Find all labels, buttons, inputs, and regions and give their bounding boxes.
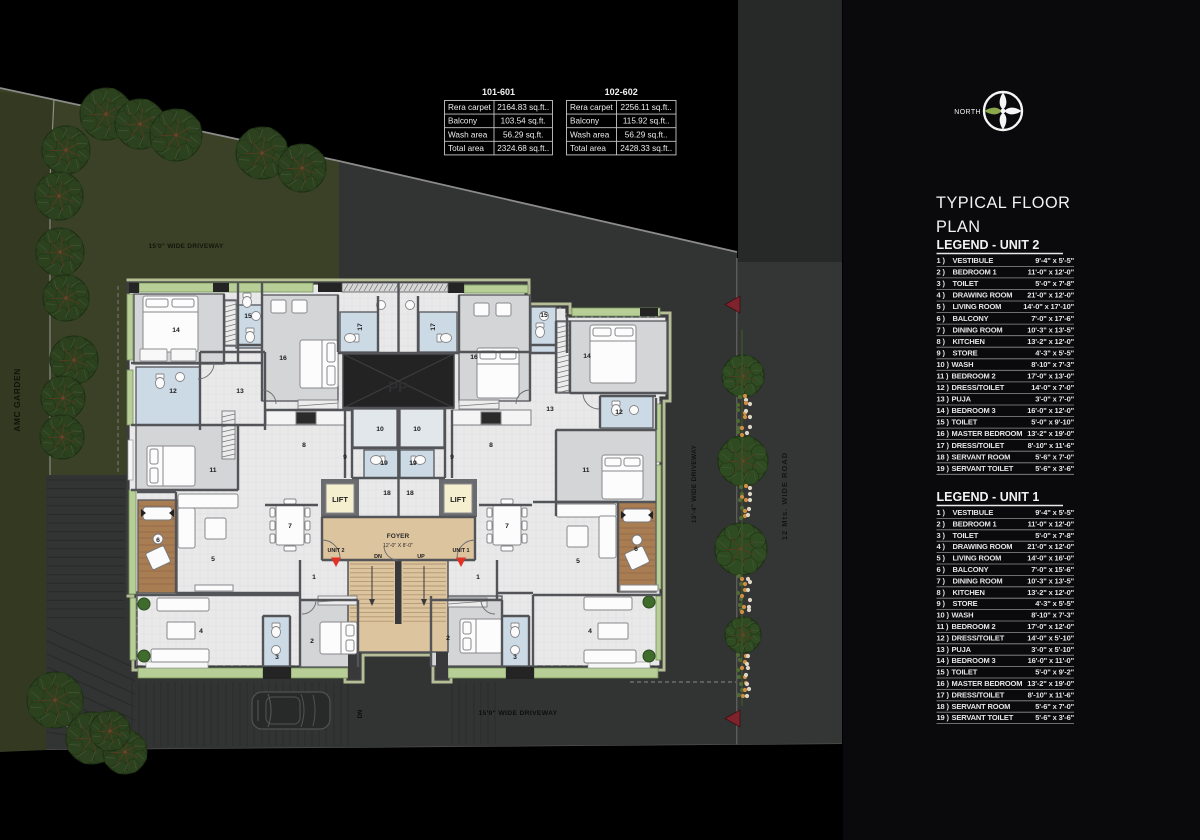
svg-text:9: 9 (450, 454, 454, 461)
svg-text:1 ): 1 ) (937, 256, 946, 265)
svg-text:6: 6 (156, 537, 160, 544)
svg-text:3'-0" x 7'-0": 3'-0" x 7'-0" (1035, 395, 1074, 404)
svg-text:4'-3" x 5'-5": 4'-3" x 5'-5" (1035, 599, 1074, 608)
svg-text:5'-6" x 7'-0": 5'-6" x 7'-0" (1035, 452, 1074, 461)
svg-text:18 ): 18 ) (937, 702, 950, 711)
svg-text:LEGEND - UNIT 1: LEGEND - UNIT 1 (937, 490, 1040, 504)
svg-text:12: 12 (615, 409, 623, 416)
svg-text:13'-2" x 12'-0": 13'-2" x 12'-0" (1027, 588, 1074, 597)
svg-text:8'-10" x 11'-6": 8'-10" x 11'-6" (1028, 690, 1075, 699)
svg-text:2 ): 2 ) (937, 519, 946, 528)
svg-text:LIVING ROOM: LIVING ROOM (953, 302, 1002, 311)
svg-text:LIFT: LIFT (450, 495, 466, 504)
svg-text:13 ): 13 ) (937, 395, 950, 404)
svg-text:3: 3 (513, 654, 517, 661)
svg-text:2324.68 sq.ft..: 2324.68 sq.ft.. (497, 144, 549, 153)
svg-text:14 ): 14 ) (937, 406, 950, 415)
svg-text:13'-2" x 12'-0": 13'-2" x 12'-0" (1027, 337, 1074, 346)
svg-text:5 ): 5 ) (937, 554, 946, 563)
svg-text:Balcony: Balcony (570, 117, 600, 126)
svg-text:16'-0" x 12'-0": 16'-0" x 12'-0" (1027, 406, 1074, 415)
svg-text:15: 15 (244, 313, 252, 320)
svg-text:56.29 sq.ft.: 56.29 sq.ft. (503, 130, 544, 139)
svg-text:17: 17 (357, 323, 364, 331)
svg-text:8: 8 (489, 442, 493, 449)
svg-text:14'-0" x 5'-10": 14'-0" x 5'-10" (1027, 633, 1074, 642)
svg-text:13'-2" x 19'-0": 13'-2" x 19'-0" (1027, 679, 1074, 688)
svg-text:10: 10 (413, 426, 421, 433)
svg-text:4 ): 4 ) (937, 291, 946, 300)
svg-text:UNIT 1: UNIT 1 (452, 548, 469, 554)
svg-text:18: 18 (383, 490, 391, 497)
svg-text:BEDROOM 1: BEDROOM 1 (953, 268, 997, 277)
svg-text:6: 6 (634, 546, 638, 553)
svg-text:7: 7 (288, 523, 292, 530)
svg-text:5: 5 (211, 556, 215, 563)
svg-text:13: 13 (546, 406, 554, 413)
svg-text:TOILET: TOILET (952, 668, 978, 677)
svg-text:5: 5 (576, 558, 580, 565)
svg-text:7 ): 7 ) (937, 325, 946, 334)
svg-text:15'9" WIDE DRIVEWAY: 15'9" WIDE DRIVEWAY (478, 710, 557, 717)
svg-text:14'-0" x 7'-0": 14'-0" x 7'-0" (1031, 383, 1074, 392)
svg-text:13: 13 (236, 388, 244, 395)
svg-text:9: 9 (343, 454, 347, 461)
svg-text:9 ): 9 ) (937, 599, 946, 608)
svg-text:5'-6" x 3'-6": 5'-6" x 3'-6" (1035, 713, 1074, 722)
svg-text:11 ): 11 ) (937, 372, 950, 381)
svg-text:4'-3" x 5'-5": 4'-3" x 5'-5" (1035, 348, 1074, 357)
svg-text:DINING ROOM: DINING ROOM (953, 576, 1003, 585)
svg-text:3 ): 3 ) (937, 531, 946, 540)
svg-text:1 ): 1 ) (937, 508, 946, 517)
svg-text:5'-0" x 9'-2": 5'-0" x 9'-2" (1035, 668, 1074, 677)
svg-text:Wash area: Wash area (448, 130, 488, 139)
svg-text:Rera carpet: Rera carpet (570, 103, 614, 112)
svg-text:2256.11 sq.ft..: 2256.11 sq.ft.. (621, 103, 672, 112)
svg-text:Wash area: Wash area (570, 130, 610, 139)
svg-text:LIVING ROOM: LIVING ROOM (953, 554, 1002, 563)
svg-text:3 ): 3 ) (937, 279, 946, 288)
svg-text:8: 8 (302, 442, 306, 449)
svg-text:VESTIBULE: VESTIBULE (953, 508, 994, 517)
svg-text:19 ): 19 ) (937, 464, 950, 473)
svg-text:STORE: STORE (953, 348, 978, 357)
svg-text:21'-0" x 12'-0": 21'-0" x 12'-0" (1027, 542, 1074, 551)
svg-text:16: 16 (279, 355, 287, 362)
svg-text:101-601: 101-601 (482, 87, 515, 97)
svg-text:11'-0" x 12'-0": 11'-0" x 12'-0" (1028, 519, 1075, 528)
svg-text:7'-0" x 15'-6": 7'-0" x 15'-6" (1031, 565, 1074, 574)
svg-text:7: 7 (505, 523, 509, 530)
svg-text:15 ): 15 ) (937, 668, 950, 677)
svg-text:14'-0" x 16'-0": 14'-0" x 16'-0" (1027, 554, 1074, 563)
svg-text:NORTH: NORTH (954, 109, 981, 116)
svg-text:16: 16 (470, 354, 478, 361)
svg-text:Total area: Total area (570, 144, 606, 153)
svg-text:15: 15 (540, 312, 548, 319)
svg-text:15 ): 15 ) (937, 418, 950, 427)
svg-text:19: 19 (409, 460, 417, 467)
svg-text:STORE: STORE (953, 599, 978, 608)
svg-text:13'-4" WIDE DRIVEWAY: 13'-4" WIDE DRIVEWAY (691, 444, 698, 523)
svg-text:10 ): 10 ) (937, 360, 950, 369)
svg-text:2 ): 2 ) (937, 268, 946, 277)
svg-text:5'-0" x 7'-8": 5'-0" x 7'-8" (1035, 279, 1074, 288)
svg-text:DRESS/TOILET: DRESS/TOILET (952, 690, 1005, 699)
svg-text:19: 19 (380, 460, 388, 467)
svg-text:1: 1 (312, 574, 316, 581)
svg-text:6 ): 6 ) (937, 565, 946, 574)
svg-text:SERVANT ROOM: SERVANT ROOM (952, 702, 1011, 711)
svg-text:SERVANT TOILET: SERVANT TOILET (952, 464, 1014, 473)
svg-text:5'-6" x 3'-6": 5'-6" x 3'-6" (1035, 464, 1074, 473)
svg-text:FOYER: FOYER (387, 533, 410, 540)
svg-text:1: 1 (476, 574, 480, 581)
svg-text:17'-0" x 12'-0": 17'-0" x 12'-0" (1027, 622, 1074, 631)
svg-text:AMC GARDEN: AMC GARDEN (12, 368, 22, 432)
svg-text:TYPICAL FLOOR: TYPICAL FLOOR (936, 194, 1070, 212)
svg-text:14: 14 (172, 327, 180, 334)
svg-text:16 ): 16 ) (937, 429, 950, 438)
svg-text:13 ): 13 ) (937, 645, 950, 654)
svg-text:Balcony: Balcony (448, 117, 478, 126)
svg-text:LEGEND - UNIT 2: LEGEND - UNIT 2 (937, 238, 1040, 252)
svg-text:11'-0" x 12'-0": 11'-0" x 12'-0" (1028, 268, 1075, 277)
svg-text:11: 11 (582, 467, 589, 474)
svg-text:WASH: WASH (952, 360, 974, 369)
svg-text:DRESS/TOILET: DRESS/TOILET (952, 441, 1005, 450)
svg-text:102-602: 102-602 (605, 87, 638, 97)
svg-text:14'-0" x 17'-10": 14'-0" x 17'-10" (1023, 302, 1074, 311)
svg-text:TOILET: TOILET (952, 418, 978, 427)
svg-text:5'-0" x 9'-10": 5'-0" x 9'-10" (1031, 418, 1074, 427)
svg-text:7'-0" x 17'-6": 7'-0" x 17'-6" (1031, 314, 1074, 323)
svg-text:2164.83 sq.ft..: 2164.83 sq.ft.. (497, 103, 549, 112)
svg-text:VESTIBULE: VESTIBULE (953, 256, 994, 265)
svg-text:10: 10 (376, 426, 384, 433)
svg-text:21'-0" x 12'-0": 21'-0" x 12'-0" (1027, 291, 1074, 300)
svg-text:TOILET: TOILET (953, 531, 979, 540)
svg-text:BEDROOM 3: BEDROOM 3 (952, 406, 996, 415)
svg-text:9'-4" x 5'-5": 9'-4" x 5'-5" (1035, 256, 1074, 265)
svg-text:KITCHEN: KITCHEN (953, 337, 985, 346)
svg-text:DINING ROOM: DINING ROOM (953, 325, 1003, 334)
svg-text:16 ): 16 ) (937, 679, 950, 688)
svg-text:12 ): 12 ) (937, 633, 950, 642)
svg-text:Rera carpet: Rera carpet (448, 103, 492, 112)
svg-text:56.29 sq.ft..: 56.29 sq.ft.. (625, 130, 668, 139)
svg-text:BEDROOM 2: BEDROOM 2 (952, 622, 996, 631)
svg-text:MASTER BEDROOM: MASTER BEDROOM (952, 679, 1023, 688)
svg-text:8 ): 8 ) (937, 588, 946, 597)
svg-text:17 ): 17 ) (937, 441, 950, 450)
svg-text:2: 2 (310, 638, 314, 645)
svg-text:TOILET: TOILET (953, 279, 979, 288)
svg-text:9'-4" x 5'-5": 9'-4" x 5'-5" (1035, 508, 1074, 517)
svg-text:BEDROOM 1: BEDROOM 1 (953, 519, 997, 528)
svg-text:8'-10" x 7'-3": 8'-10" x 7'-3" (1031, 360, 1074, 369)
svg-text:5'-0" x 7'-8": 5'-0" x 7'-8" (1035, 531, 1074, 540)
svg-text:5 ): 5 ) (937, 302, 946, 311)
svg-text:8 ): 8 ) (937, 337, 946, 346)
svg-text:12 ): 12 ) (937, 383, 950, 392)
svg-text:13'-2" x 19'-0": 13'-2" x 19'-0" (1027, 429, 1074, 438)
svg-text:DN: DN (374, 554, 382, 560)
svg-text:17 ): 17 ) (937, 690, 950, 699)
svg-text:18 ): 18 ) (937, 452, 950, 461)
svg-text:103.54 sq.ft.: 103.54 sq.ft. (501, 117, 546, 126)
svg-text:115.92 sq.ft..: 115.92 sq.ft.. (623, 117, 670, 126)
svg-text:11 ): 11 ) (937, 622, 950, 631)
svg-text:10'-3" x 13'-5": 10'-3" x 13'-5" (1027, 576, 1074, 585)
svg-text:8'-10" x 11'-6": 8'-10" x 11'-6" (1028, 441, 1075, 450)
svg-text:5'-6" x 7'-0": 5'-6" x 7'-0" (1035, 702, 1074, 711)
svg-text:PUJA: PUJA (952, 645, 972, 654)
svg-text:9 ): 9 ) (937, 348, 946, 357)
svg-text:BEDROOM 3: BEDROOM 3 (952, 656, 996, 665)
svg-text:14 ): 14 ) (937, 656, 950, 665)
svg-text:4: 4 (199, 628, 203, 635)
svg-text:8'-10" x 7'-3": 8'-10" x 7'-3" (1031, 611, 1074, 620)
svg-text:12: 12 (169, 388, 177, 395)
svg-text:DRAWING ROOM: DRAWING ROOM (953, 542, 1013, 551)
svg-text:DRAWING ROOM: DRAWING ROOM (953, 291, 1013, 300)
svg-text:17'-0" x 13'-0": 17'-0" x 13'-0" (1027, 372, 1074, 381)
svg-text:2428.33 sq.ft..: 2428.33 sq.ft.. (620, 144, 672, 153)
svg-text:12'-0" X 8'-0": 12'-0" X 8'-0" (383, 543, 413, 549)
svg-text:17: 17 (430, 323, 437, 331)
svg-text:BALCONY: BALCONY (953, 314, 989, 323)
svg-text:15'0" WIDE DRIVEWAY: 15'0" WIDE DRIVEWAY (149, 243, 224, 250)
svg-text:WASH: WASH (952, 611, 974, 620)
svg-text:Total area: Total area (448, 144, 484, 153)
svg-text:12 Mts. WIDE ROAD: 12 Mts. WIDE ROAD (780, 452, 789, 540)
svg-text:10'-3" x 13'-5": 10'-3" x 13'-5" (1027, 325, 1074, 334)
svg-text:DRESS/TOILET: DRESS/TOILET (952, 633, 1005, 642)
svg-text:MASTER BEDROOM: MASTER BEDROOM (952, 429, 1023, 438)
svg-text:16'-0" x 11'-0": 16'-0" x 11'-0" (1028, 656, 1075, 665)
svg-text:DRESS/TOILET: DRESS/TOILET (952, 383, 1005, 392)
svg-text:PUJA: PUJA (952, 395, 972, 404)
svg-text:7 ): 7 ) (937, 576, 946, 585)
svg-text:LIFT: LIFT (332, 495, 348, 504)
svg-text:14: 14 (583, 353, 591, 360)
svg-text:3'-0" x 5'-10": 3'-0" x 5'-10" (1031, 645, 1074, 654)
svg-text:KITCHEN: KITCHEN (953, 588, 985, 597)
svg-text:UNIT 2: UNIT 2 (327, 548, 344, 554)
svg-text:2: 2 (446, 635, 450, 642)
svg-text:6 ): 6 ) (937, 314, 946, 323)
svg-text:DN: DN (358, 710, 364, 719)
svg-text:SERVANT ROOM: SERVANT ROOM (952, 452, 1011, 461)
svg-text:4: 4 (588, 628, 592, 635)
svg-text:18: 18 (406, 490, 414, 497)
svg-text:19 ): 19 ) (937, 713, 950, 722)
svg-text:4 ): 4 ) (937, 542, 946, 551)
svg-text:BEDROOM 2: BEDROOM 2 (952, 372, 996, 381)
svg-text:PP: PP (388, 379, 408, 396)
svg-text:11: 11 (209, 467, 216, 474)
svg-text:3: 3 (275, 654, 279, 661)
svg-text:UP: UP (417, 554, 425, 560)
svg-text:SERVANT TOILET: SERVANT TOILET (952, 713, 1014, 722)
svg-text:PLAN: PLAN (936, 218, 981, 236)
svg-text:10 ): 10 ) (937, 611, 950, 620)
svg-text:BALCONY: BALCONY (953, 565, 989, 574)
